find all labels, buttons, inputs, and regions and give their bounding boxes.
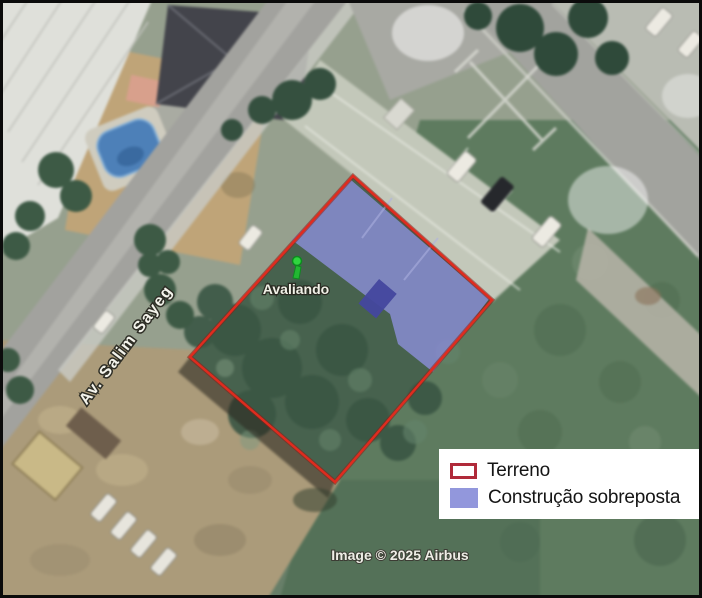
legend-row-terreno: Terreno (450, 460, 702, 482)
legend-label-construcao: Construção sobreposta (488, 487, 680, 509)
tree-shadow-corner (293, 488, 337, 512)
legend-row-construcao: Construção sobreposta (450, 487, 702, 509)
satellite-map-view[interactable]: Avaliando Av. Salim Sayeg Image © 2025 A… (0, 0, 702, 598)
attribution-text: Image © 2025 Airbus (331, 547, 469, 563)
construction-swatch (450, 488, 478, 508)
legend: Terreno Construção sobreposta (439, 449, 702, 519)
legend-label-terreno: Terreno (487, 460, 550, 482)
terreno-swatch (450, 463, 477, 479)
placemark-label: Avaliando (263, 281, 329, 297)
